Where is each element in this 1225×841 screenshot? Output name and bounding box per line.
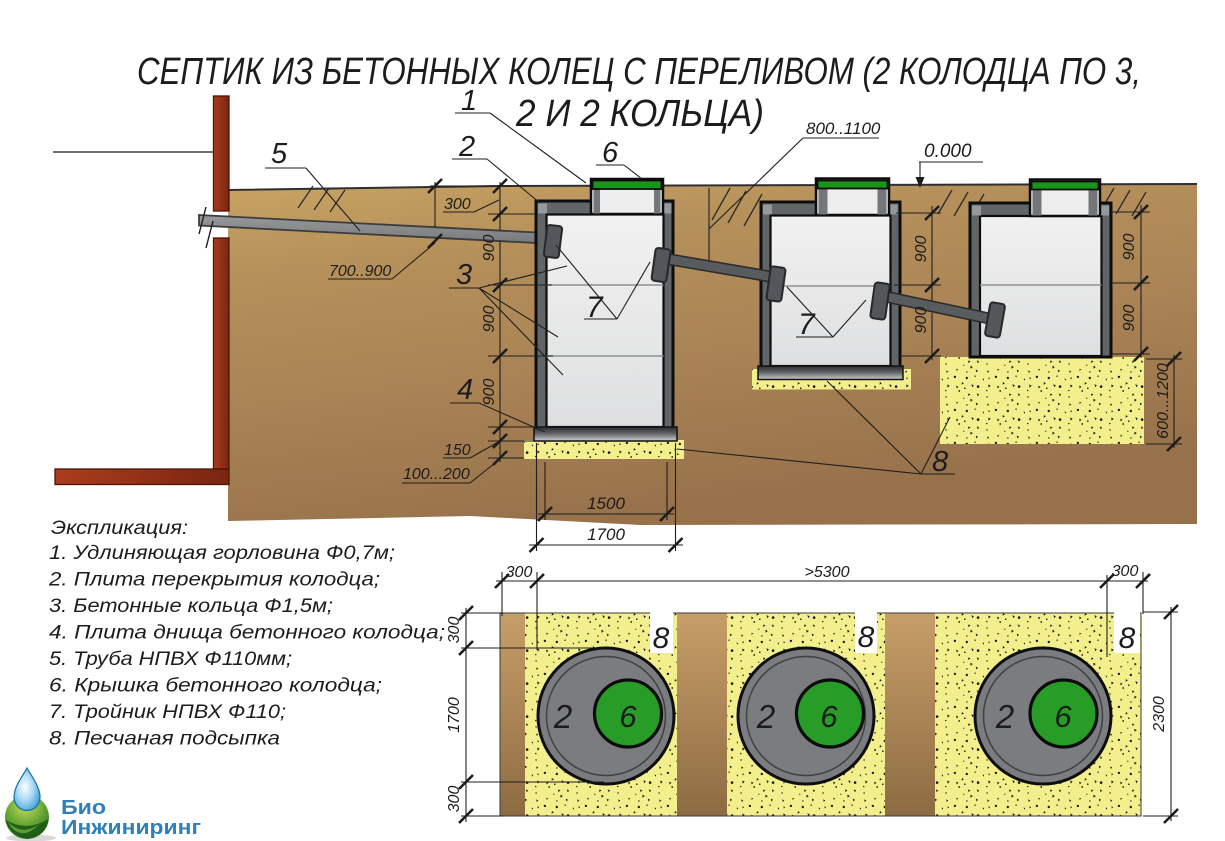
svg-text:8: 8 [1119,622,1136,655]
svg-text:900: 900 [913,307,930,334]
svg-text:Био: Био [61,797,106,819]
svg-text:600...1200: 600...1200 [1155,363,1172,439]
svg-text:1. Удлиняющая горловина Ф0,: 1. Удлиняющая горловина Ф0,7м; [49,543,395,564]
svg-text:7. Тройник НПВХ Ф110;: 7. Тройник НПВХ Ф110; [49,702,286,723]
svg-text:6. Крышка бетонного колодца: 6. Крышка бетонного колодца; [49,676,382,697]
svg-text:6: 6 [619,699,637,734]
svg-text:6: 6 [820,699,838,734]
svg-text:300: 300 [444,196,471,213]
svg-text:0.000: 0.000 [924,141,972,162]
svg-text:2: 2 [756,698,775,735]
svg-text:Инжиниринг: Инжиниринг [61,817,201,839]
svg-text:2: 2 [995,698,1014,735]
svg-text:300: 300 [1112,563,1139,580]
svg-text:1: 1 [461,85,477,117]
svg-text:900: 900 [913,236,930,263]
svg-text:3. Бетонные кольца Ф1,5м;: 3. Бетонные кольца Ф1,5м; [49,596,333,617]
svg-text:8: 8 [932,446,948,478]
svg-text:1700: 1700 [587,525,625,544]
svg-text:8. Песчаная подсыпка: 8. Песчаная подсыпка [49,729,280,750]
svg-text:4: 4 [457,374,473,406]
svg-text:900: 900 [481,379,498,406]
svg-text:СЕПТИК ИЗ БЕТОННЫХ КОЛЕЦ С ПЕР: СЕПТИК ИЗ БЕТОННЫХ КОЛЕЦ С ПЕРЕЛИВОМ (2 … [137,51,1141,93]
svg-text:900: 900 [481,235,498,262]
svg-text:4. Плита днища бетонного к: 4. Плита днища бетонного колодца; [49,623,445,644]
svg-text:300: 300 [446,617,463,644]
svg-text:>5300: >5300 [805,564,850,581]
svg-text:3: 3 [456,259,472,291]
svg-text:2. Плита перекрытия колодца: 2. Плита перекрытия колодца; [48,570,380,591]
svg-text:300: 300 [446,786,463,813]
svg-text:5. Труба НПВХ Ф110мм;: 5. Труба НПВХ Ф110мм; [49,649,292,670]
svg-text:8: 8 [858,621,875,654]
svg-text:1500: 1500 [587,494,625,513]
svg-text:900: 900 [481,306,498,333]
svg-text:2 И 2 КОЛЬЦА): 2 И 2 КОЛЬЦА) [515,93,764,135]
svg-text:6: 6 [1054,699,1072,734]
svg-text:2: 2 [553,698,572,735]
svg-text:8: 8 [653,622,670,655]
svg-text:6: 6 [602,137,619,169]
svg-text:2300: 2300 [1151,696,1168,733]
svg-text:1700: 1700 [446,697,463,733]
svg-text:800..1100: 800..1100 [806,119,881,138]
svg-text:900: 900 [1121,305,1138,332]
svg-text:100...200: 100...200 [403,466,470,483]
svg-text:5: 5 [271,138,288,170]
svg-text:150: 150 [444,442,471,459]
svg-text:2: 2 [458,131,475,163]
svg-text:7: 7 [798,308,816,341]
svg-text:700..900: 700..900 [329,263,391,280]
svg-text:900: 900 [1121,234,1138,261]
svg-text:300: 300 [506,564,533,581]
svg-text:Экспликация:: Экспликация: [51,518,188,539]
